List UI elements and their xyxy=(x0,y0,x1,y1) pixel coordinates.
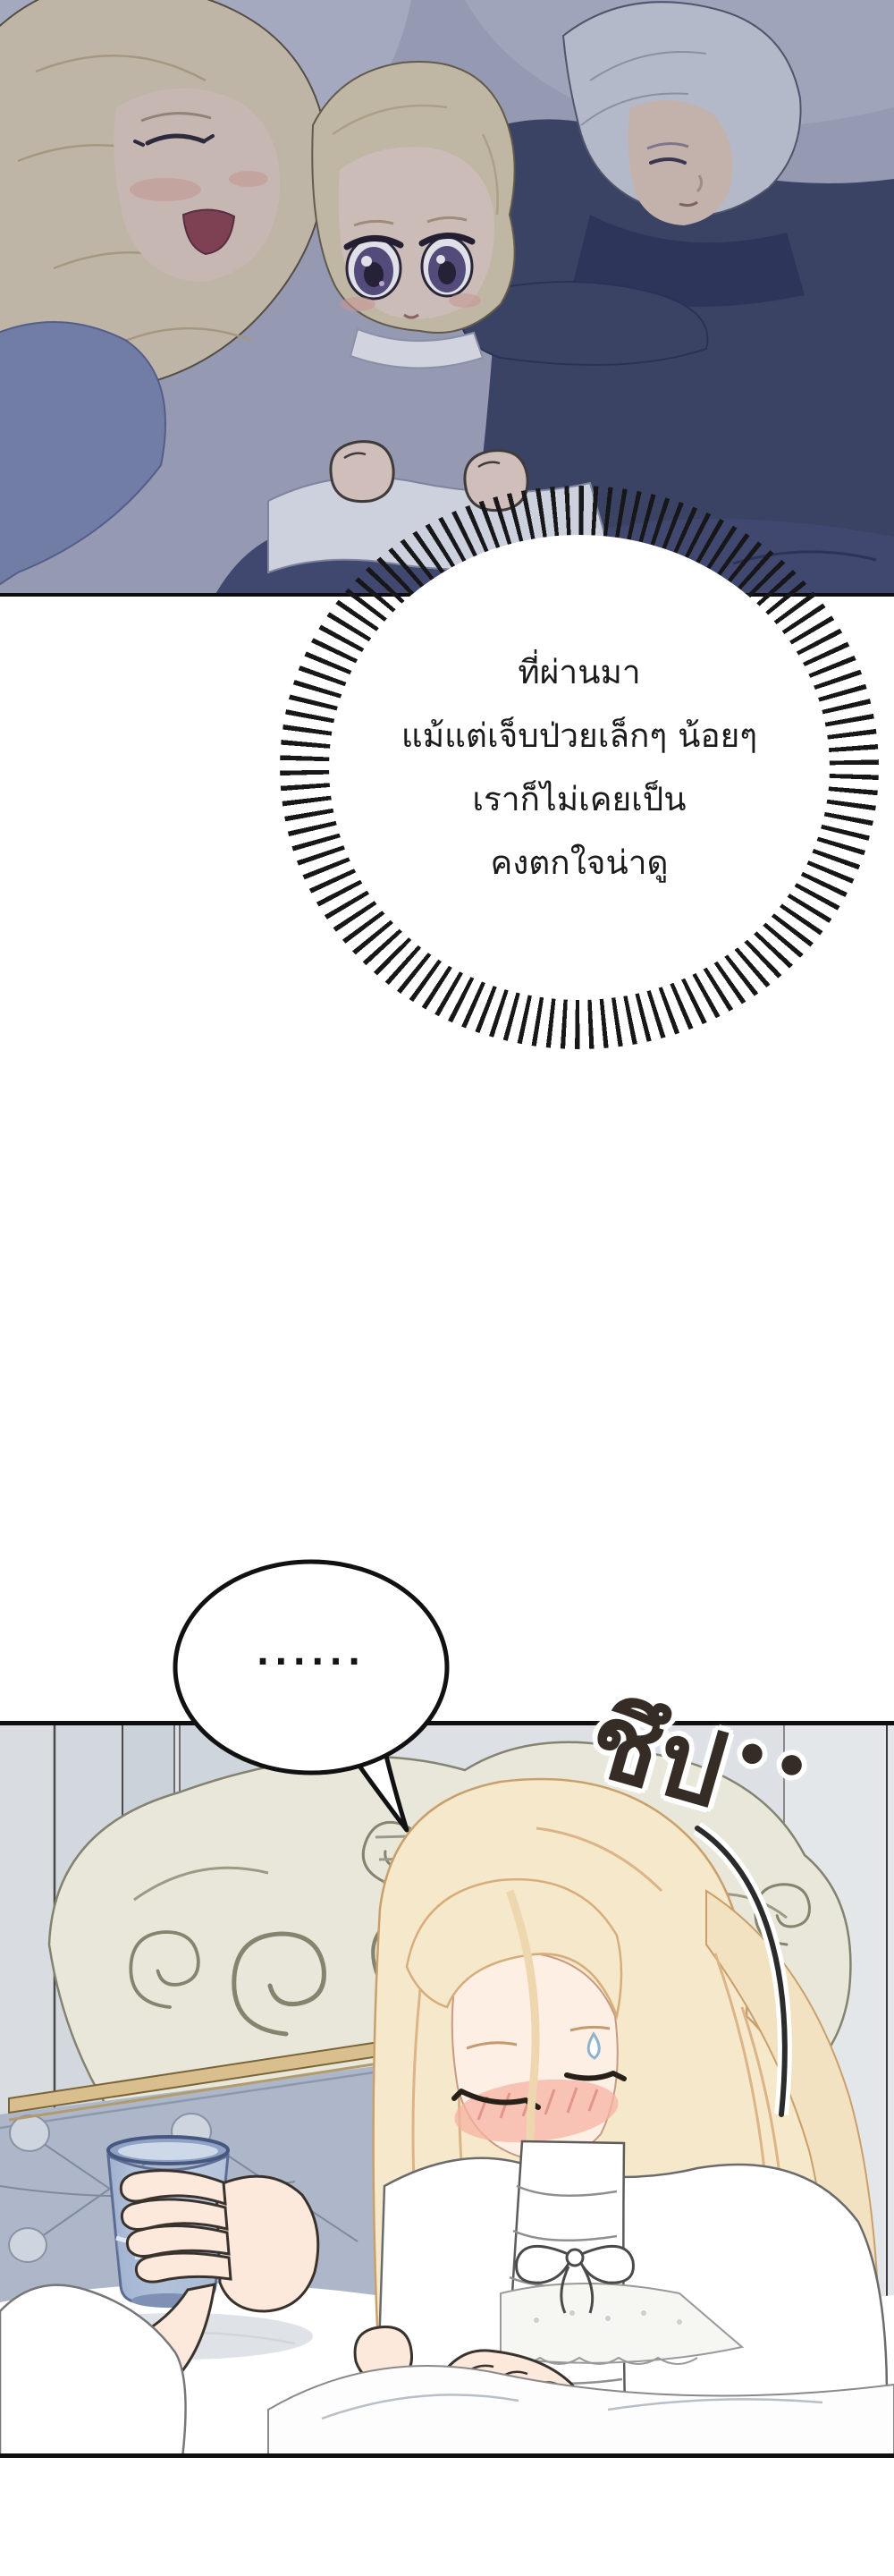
thought-line-2: แม้แต่เจ็บป่วยเล็กๆ น้อยๆ xyxy=(401,704,757,767)
thought-line-4: คงตกใจน่าดู xyxy=(490,831,668,894)
thought-bubble: ที่ผ่านมา แม้แต่เจ็บป่วยเล็กๆ น้อยๆ เราก… xyxy=(329,535,830,1000)
thought-line-1: ที่ผ่านมา xyxy=(518,640,640,704)
thought-line-3: เราก็ไม่เคยเป็น xyxy=(472,767,686,831)
sfx-word: ชึป xyxy=(576,1679,738,1831)
webtoon-page: ที่ผ่านมา แม้แต่เจ็บป่วยเล็กๆ น้อยๆ เราก… xyxy=(0,0,894,2576)
speech-bubble-text: ...... xyxy=(222,1633,401,1673)
top-panel-illustration xyxy=(0,0,894,596)
top-panel xyxy=(0,0,894,596)
sfx-trail-dots: •• xyxy=(725,1719,822,1805)
speech-bubble xyxy=(143,1534,465,1847)
